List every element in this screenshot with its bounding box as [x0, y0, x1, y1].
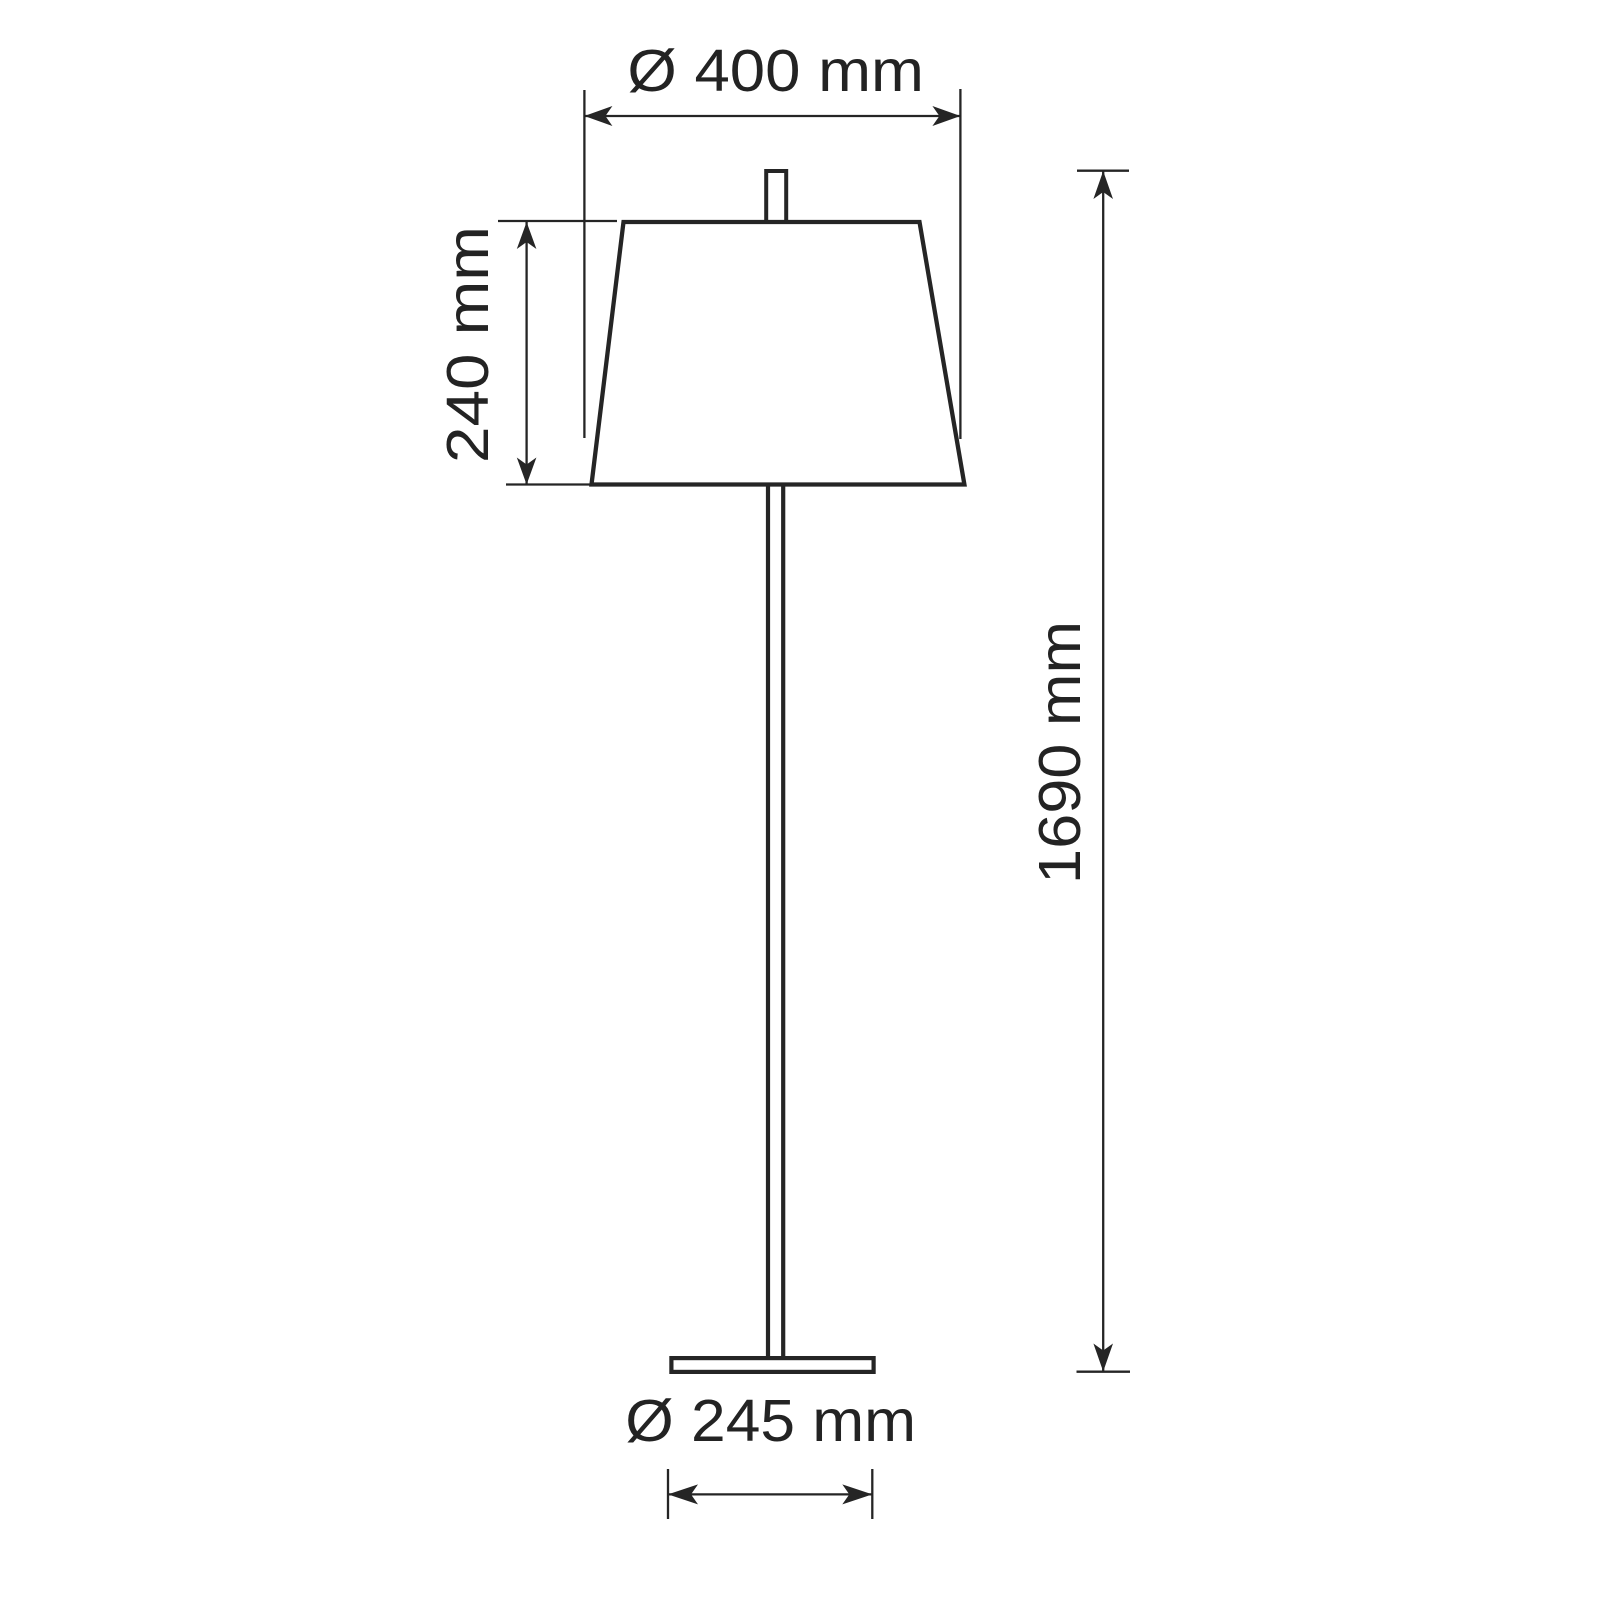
svg-text:240 mm: 240 mm: [436, 226, 501, 463]
svg-text:1690 mm: 1690 mm: [1027, 621, 1093, 884]
svg-text:Ø 245 mm: Ø 245 mm: [625, 1388, 916, 1454]
svg-text:Ø 400 mm: Ø 400 mm: [627, 37, 924, 103]
